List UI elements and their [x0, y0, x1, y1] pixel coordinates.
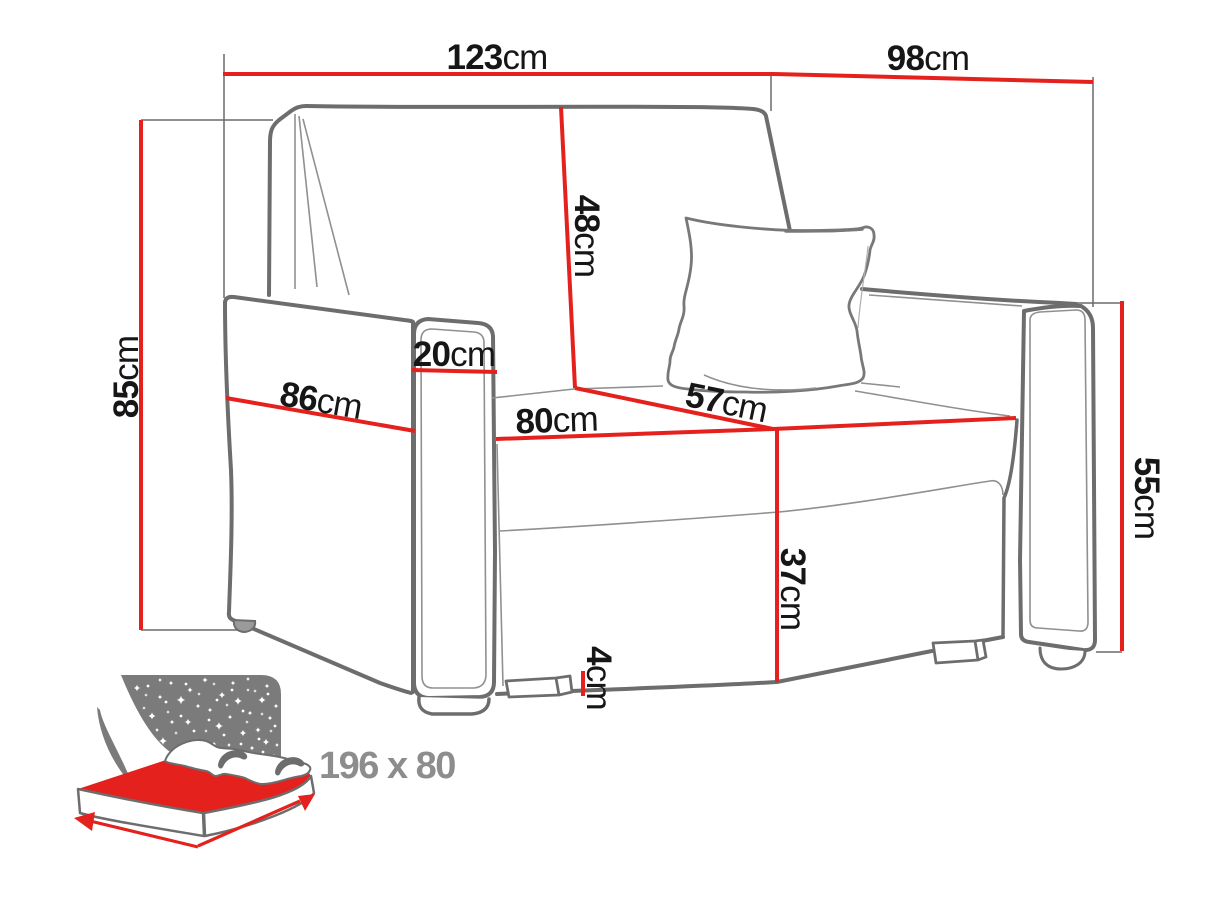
svg-text:20cm: 20cm: [413, 335, 495, 374]
svg-text:37cm: 37cm: [773, 548, 812, 630]
svg-text:123cm: 123cm: [446, 38, 547, 77]
svg-text:80cm: 80cm: [515, 400, 599, 442]
svg-text:196 x 80: 196 x 80: [319, 745, 455, 787]
svg-text:4cm: 4cm: [579, 646, 618, 710]
svg-text:55cm: 55cm: [1127, 457, 1166, 539]
svg-text:48cm: 48cm: [567, 195, 606, 277]
svg-text:98cm: 98cm: [887, 39, 969, 78]
svg-text:85cm: 85cm: [107, 336, 146, 418]
